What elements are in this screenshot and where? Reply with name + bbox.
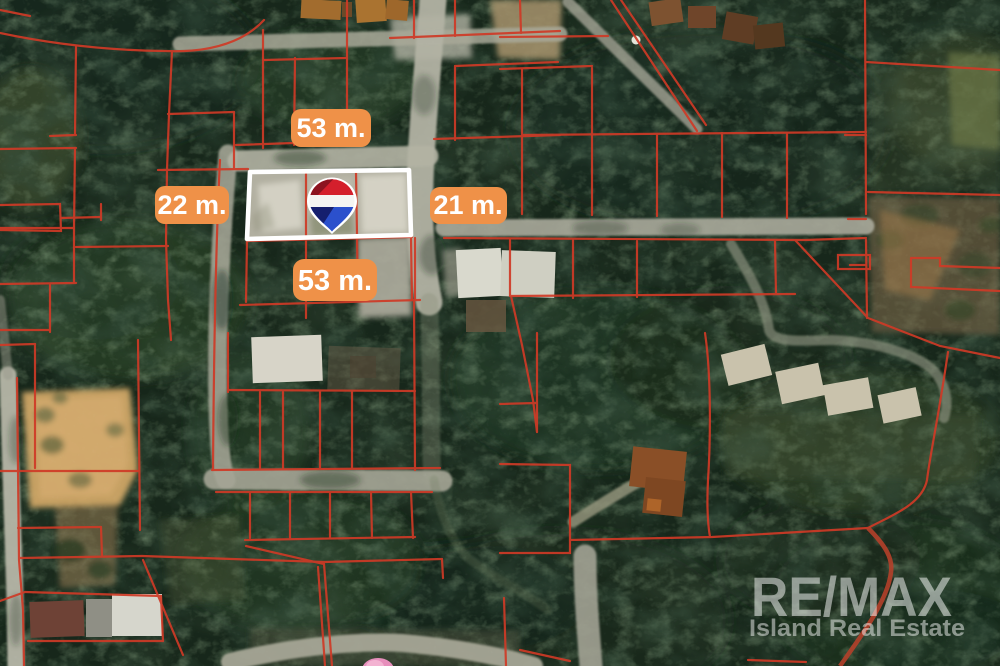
svg-text:53 m.: 53 m. — [298, 265, 372, 297]
svg-text:21 m.: 21 m. — [433, 190, 502, 220]
svg-text:Island Real Estate: Island Real Estate — [749, 615, 965, 642]
svg-text:53 m.: 53 m. — [296, 113, 365, 143]
svg-text:22 m.: 22 m. — [157, 190, 226, 220]
